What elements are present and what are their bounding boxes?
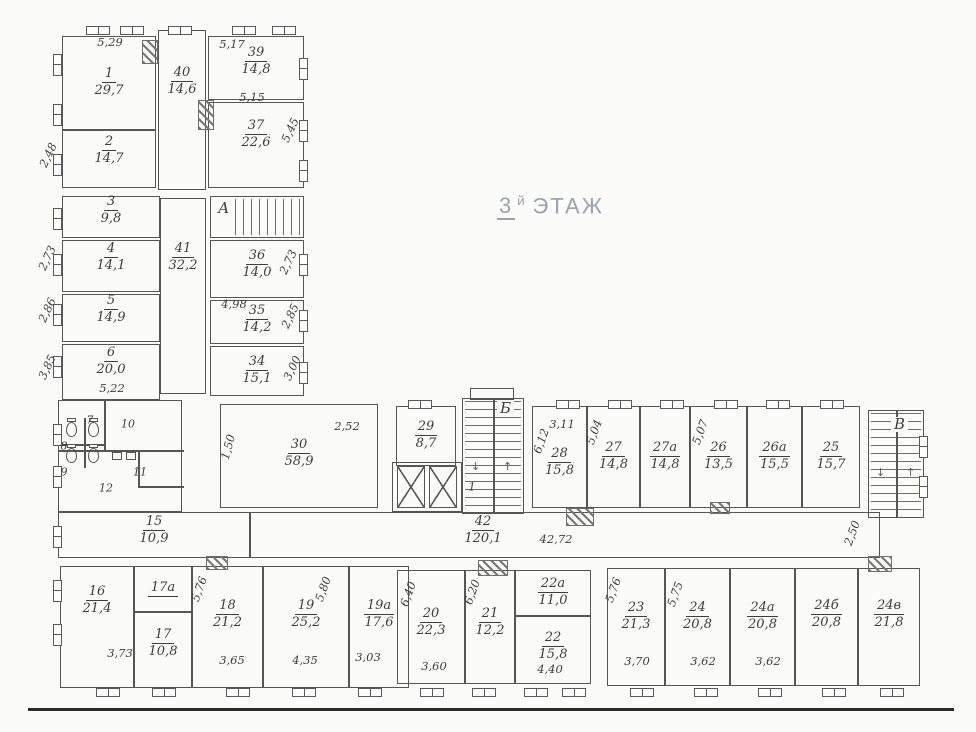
- room-area: 21,3: [622, 618, 651, 633]
- window-symbol: [714, 400, 738, 409]
- stair-direction-arrow: ↑: [906, 467, 915, 478]
- room-label: 2112,2: [476, 607, 505, 639]
- window-symbol: [53, 54, 62, 76]
- room-number: 17: [152, 628, 175, 644]
- room-number: 1: [102, 67, 116, 83]
- window-symbol: [630, 688, 654, 697]
- dim-label: 3,03: [355, 650, 381, 664]
- small-room-label: 1: [469, 481, 476, 494]
- window-symbol: [168, 26, 192, 35]
- room-r24v: 24в21,8: [858, 568, 920, 686]
- dim-label: 3,70: [624, 654, 650, 668]
- room-number: 24б: [811, 599, 841, 615]
- room-area: 32,2: [169, 259, 198, 274]
- small-room-label: 10: [121, 418, 135, 431]
- room-number: 28: [548, 447, 571, 463]
- room-label: 2515,7: [817, 441, 846, 473]
- room-label: 26а15,5: [759, 441, 789, 473]
- toilet-fixture: [66, 448, 77, 463]
- dim-label: 4,98: [221, 297, 247, 311]
- stair-sV: В↓↑: [868, 410, 924, 518]
- room-number: 40: [171, 66, 194, 82]
- window-symbol: [822, 688, 846, 697]
- window-symbol: [524, 688, 548, 697]
- room-area: 14,6: [168, 83, 197, 98]
- floor-title: 3йЭТАЖ: [497, 193, 604, 219]
- wall-segment: [104, 401, 106, 451]
- room-label: 1821,2: [213, 599, 242, 631]
- stair-direction-arrow: ↓: [471, 461, 480, 472]
- room-number: 15: [143, 515, 166, 531]
- window-symbol: [820, 400, 844, 409]
- dim-label: 5,15: [239, 90, 265, 104]
- room-area: 58,9: [285, 455, 314, 470]
- room-r29: 298,7: [396, 406, 456, 466]
- room-label: 1925,2: [292, 599, 321, 631]
- room-label: 2714,8: [599, 441, 628, 473]
- hatched-wall: [710, 502, 730, 514]
- sink-fixture: [126, 452, 136, 460]
- window-symbol: [556, 400, 580, 409]
- room-area: 22,3: [417, 624, 446, 639]
- room-number: 34: [246, 355, 269, 371]
- room-area: 15,1: [243, 372, 272, 387]
- window-symbol: [53, 580, 62, 602]
- room-number: 27а: [650, 441, 680, 457]
- window-symbol: [408, 400, 432, 409]
- room-number: 35: [246, 304, 269, 320]
- hatched-wall: [142, 40, 158, 64]
- small-room-label: 7: [87, 414, 94, 427]
- room-r2: 214,7: [62, 130, 156, 188]
- room-label: 39,8: [101, 195, 122, 227]
- room-area: 12,2: [476, 624, 505, 639]
- stair-sA: А: [210, 196, 304, 238]
- room-label: 1510,9: [140, 515, 169, 547]
- room-area: 9,8: [101, 212, 122, 227]
- room-r17a: 17а: [134, 566, 192, 612]
- window-symbol: [420, 688, 444, 697]
- room-number: 21: [479, 607, 502, 623]
- room-area: 11,0: [539, 594, 568, 609]
- window-symbol: [120, 26, 144, 35]
- dim-label: 3,62: [755, 654, 781, 668]
- room-number: 39: [245, 46, 268, 62]
- room-number: 26: [707, 441, 730, 457]
- room-r17: 1710,8: [134, 612, 192, 688]
- room-r16: 1621,4: [60, 566, 134, 688]
- window-symbol: [53, 104, 62, 126]
- floor-suffix: й: [517, 193, 526, 208]
- room-label: 129,7: [95, 67, 124, 99]
- room-area: 25,2: [292, 616, 321, 631]
- stair-direction-arrow: ↓: [876, 467, 885, 478]
- window-symbol: [919, 476, 928, 498]
- room-area: 14,0: [243, 266, 272, 281]
- room-number: 20: [420, 607, 443, 623]
- room-number: 23: [625, 601, 648, 617]
- sink-fixture: [112, 452, 122, 460]
- hatched-wall: [478, 560, 508, 576]
- room-area: 14,9: [97, 311, 126, 326]
- room-area: 14,2: [243, 321, 272, 336]
- room-r5: 514,9: [62, 294, 160, 342]
- dim-label: 3,62: [690, 654, 716, 668]
- dim-label: 2,52: [334, 419, 360, 433]
- room-r22a: 22а11,0: [515, 570, 591, 616]
- window-symbol: [766, 400, 790, 409]
- window-symbol: [232, 26, 256, 35]
- room-area: 10,9: [140, 532, 169, 547]
- room-number: 5: [104, 294, 118, 310]
- room-label: 24в21,8: [874, 599, 904, 631]
- window-symbol: [96, 688, 120, 697]
- room-number: 19а: [364, 599, 394, 615]
- room-label: 19а17,6: [364, 599, 394, 631]
- room-area: 14,7: [95, 152, 124, 167]
- room-label: 3722,6: [242, 119, 271, 151]
- room-label: 1621,4: [83, 585, 112, 617]
- window-symbol: [694, 688, 718, 697]
- room-number: 24: [686, 601, 709, 617]
- room-area: 120,1: [464, 532, 501, 547]
- room-area: 10,8: [149, 645, 178, 660]
- window-symbol: [272, 26, 296, 35]
- window-symbol: [226, 688, 250, 697]
- room-label: 2215,8: [539, 631, 568, 663]
- room-number: 22: [542, 631, 565, 647]
- room-area: 14,8: [651, 458, 680, 473]
- room-number: 41: [172, 242, 195, 258]
- room-number: 18: [216, 599, 239, 615]
- room-label: 24б20,8: [811, 599, 841, 631]
- room-label: 24а20,8: [747, 601, 777, 633]
- wall-segment: [138, 486, 184, 488]
- dim-label: 5,29: [97, 35, 123, 49]
- room-area: 20,8: [812, 616, 841, 631]
- room-label: 3914,8: [242, 46, 271, 78]
- room-area: 20,0: [97, 363, 126, 378]
- room-label: 3058,9: [285, 438, 314, 470]
- room-number: 42: [472, 515, 495, 531]
- toilet-fixture: [88, 448, 99, 463]
- hatched-wall: [198, 100, 214, 130]
- floor-plan: 3йЭТАЖ 129,74014,63914,83722,6214,739,84…: [0, 0, 976, 732]
- room-label: 3614,0: [243, 249, 272, 281]
- elevator-shaft: [429, 466, 457, 508]
- dim-label: 4,40: [537, 662, 563, 676]
- room-label: 4132,2: [169, 242, 198, 274]
- hatched-wall: [868, 556, 892, 572]
- room-label: 2420,8: [683, 601, 712, 633]
- dim-label: 42,72: [540, 532, 573, 546]
- room-number: 19: [295, 599, 318, 615]
- room-number: 22а: [538, 577, 568, 593]
- room-r41: 4132,2: [160, 198, 206, 394]
- small-room-label: 9: [61, 466, 68, 479]
- room-label: 1710,8: [149, 628, 178, 660]
- room-label: 3415,1: [243, 355, 272, 387]
- stair-treads: [235, 199, 301, 235]
- room-number: 29: [415, 420, 438, 436]
- window-symbol: [472, 688, 496, 697]
- room-label: 414,1: [97, 242, 126, 274]
- small-room-label: 11: [133, 466, 147, 479]
- room-number: 27: [602, 441, 625, 457]
- window-symbol: [53, 624, 62, 646]
- window-symbol: [53, 208, 62, 230]
- room-area: 14,1: [97, 259, 126, 274]
- window-symbol: [299, 58, 308, 80]
- room-area: 13,5: [704, 458, 733, 473]
- room-area: 21,8: [875, 616, 904, 631]
- floor-word: ЭТАЖ: [533, 193, 605, 218]
- room-label: 4014,6: [168, 66, 197, 98]
- room-r4: 414,1: [62, 240, 160, 292]
- window-symbol: [86, 26, 110, 35]
- scan-artifact-line: [28, 708, 954, 711]
- room-r19: 1925,2: [263, 566, 349, 688]
- room-r25: 2515,7: [802, 406, 860, 508]
- window-symbol: [758, 688, 782, 697]
- window-symbol: [152, 688, 176, 697]
- room-number: 24в: [874, 599, 904, 615]
- room-area: 20,8: [748, 618, 777, 633]
- room-label: 2815,8: [545, 447, 574, 479]
- stair-sB: Б↓↑: [462, 398, 524, 514]
- dim-label: 3,73: [107, 646, 133, 660]
- stair-divider: [493, 399, 495, 513]
- room-area: 15,5: [760, 458, 789, 473]
- room-label: 27а14,8: [650, 441, 680, 473]
- window-symbol: [562, 688, 586, 697]
- dim-label: 4,35: [292, 653, 318, 667]
- window-symbol: [919, 436, 928, 458]
- window-symbol: [53, 526, 62, 548]
- room-area: 14,8: [242, 63, 271, 78]
- window-symbol: [299, 160, 308, 182]
- room-label: 2022,3: [417, 607, 446, 639]
- room-r3: 39,8: [62, 196, 160, 238]
- room-area: 8,7: [416, 437, 437, 452]
- dim-label: 3,65: [219, 653, 245, 667]
- room-number: 6: [104, 346, 118, 362]
- small-room-label: 12: [99, 482, 113, 495]
- room-number: 3: [104, 195, 118, 211]
- room-area: 20,8: [683, 618, 712, 633]
- toilet-fixture: [66, 422, 77, 437]
- room-number: 26а: [759, 441, 789, 457]
- small-room-label: 8: [61, 440, 68, 453]
- stair-direction-arrow: ↑: [503, 461, 512, 472]
- room-area: 15,7: [817, 458, 846, 473]
- room-number: 36: [246, 249, 269, 265]
- room-label: 620,0: [97, 346, 126, 378]
- window-symbol: [608, 400, 632, 409]
- window-symbol: [358, 688, 382, 697]
- room-area: 29,7: [95, 84, 124, 99]
- room-area: 17,6: [365, 616, 394, 631]
- room-label: 298,7: [415, 420, 438, 452]
- room-number: 30: [288, 438, 311, 454]
- window-symbol: [299, 310, 308, 332]
- room-label: 2321,3: [622, 601, 651, 633]
- room-label: 214,7: [95, 135, 124, 167]
- room-number: 25: [820, 441, 843, 457]
- window-symbol: [880, 688, 904, 697]
- room-r26a: 26а15,5: [747, 406, 802, 508]
- room-r24b: 24б20,8: [795, 568, 858, 686]
- window-symbol: [292, 688, 316, 697]
- stair-label: Б: [497, 401, 514, 416]
- room-number: 24а: [747, 601, 777, 617]
- room-label: 42120,1: [464, 515, 501, 547]
- room-number: 16: [86, 585, 109, 601]
- hatched-wall: [206, 556, 228, 570]
- dim-label: 5,22: [99, 381, 125, 395]
- room-area: 15,8: [545, 464, 574, 479]
- room-label: 514,9: [97, 294, 126, 326]
- room-number: 37: [245, 119, 268, 135]
- room-area: 22,6: [242, 136, 271, 151]
- window-symbol: [660, 400, 684, 409]
- window-symbol: [299, 254, 308, 276]
- room-area: 21,4: [83, 602, 112, 617]
- room-number: 2: [102, 135, 116, 151]
- floor-number: 3: [497, 193, 515, 220]
- room-area: 14,8: [599, 458, 628, 473]
- room-number: 17а: [148, 581, 178, 597]
- room-r15: 1510,9: [58, 512, 250, 558]
- room-r24a: 24а20,8: [730, 568, 795, 686]
- room-area: 15,8: [539, 648, 568, 663]
- elevator-shaft: [397, 466, 425, 508]
- dim-label: 3,60: [421, 659, 447, 673]
- room-label: 17а: [148, 581, 178, 597]
- room-r27a: 27а14,8: [640, 406, 690, 508]
- stair-label: А: [215, 201, 232, 216]
- hatched-wall: [566, 508, 594, 526]
- room-number: 4: [104, 242, 118, 258]
- dim-label: 5,17: [219, 37, 245, 51]
- room-label: 2613,5: [704, 441, 733, 473]
- stair-label: В: [891, 417, 908, 432]
- room-label: 22а11,0: [538, 577, 568, 609]
- dim-label: 3,11: [549, 417, 575, 431]
- room-area: 21,2: [213, 616, 242, 631]
